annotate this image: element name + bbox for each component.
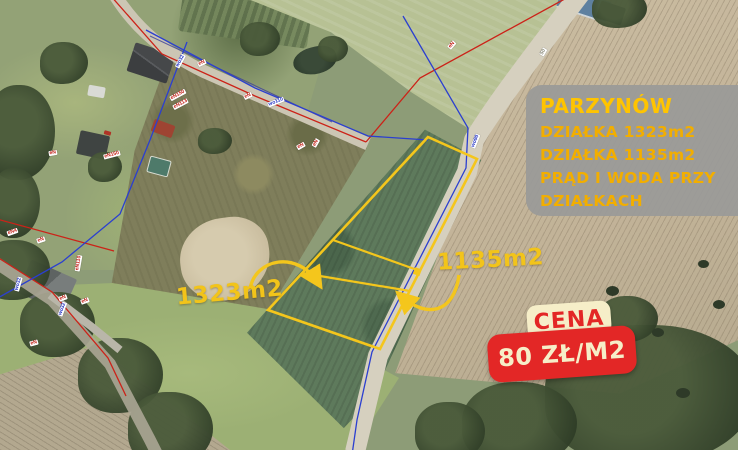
aerial-listing-image: wo32eNeNwo110eN50eNeNwo90eN150eN113eNeN1… [0,0,738,450]
listing-title: PARZYNÓW [540,94,728,118]
price-value-badge: 80 ZŁ/M2 [487,325,638,383]
listing-info-line: DZIAŁKA 1323m2 [540,121,728,144]
plot-outline [268,137,477,349]
plot-divider [333,240,420,271]
plot-annotation-layer [0,0,738,450]
listing-info-box: PARZYNÓW DZIAŁKA 1323m2 DZIAŁKA 1135m2 P… [526,85,738,216]
listing-info-line: DZIAŁKACH [540,190,728,213]
listing-info-line: PRĄD I WODA PRZY [540,167,728,190]
listing-info-line: DZIAŁKA 1135m2 [540,144,728,167]
price-value: 80 ZŁ/M2 [497,336,627,373]
